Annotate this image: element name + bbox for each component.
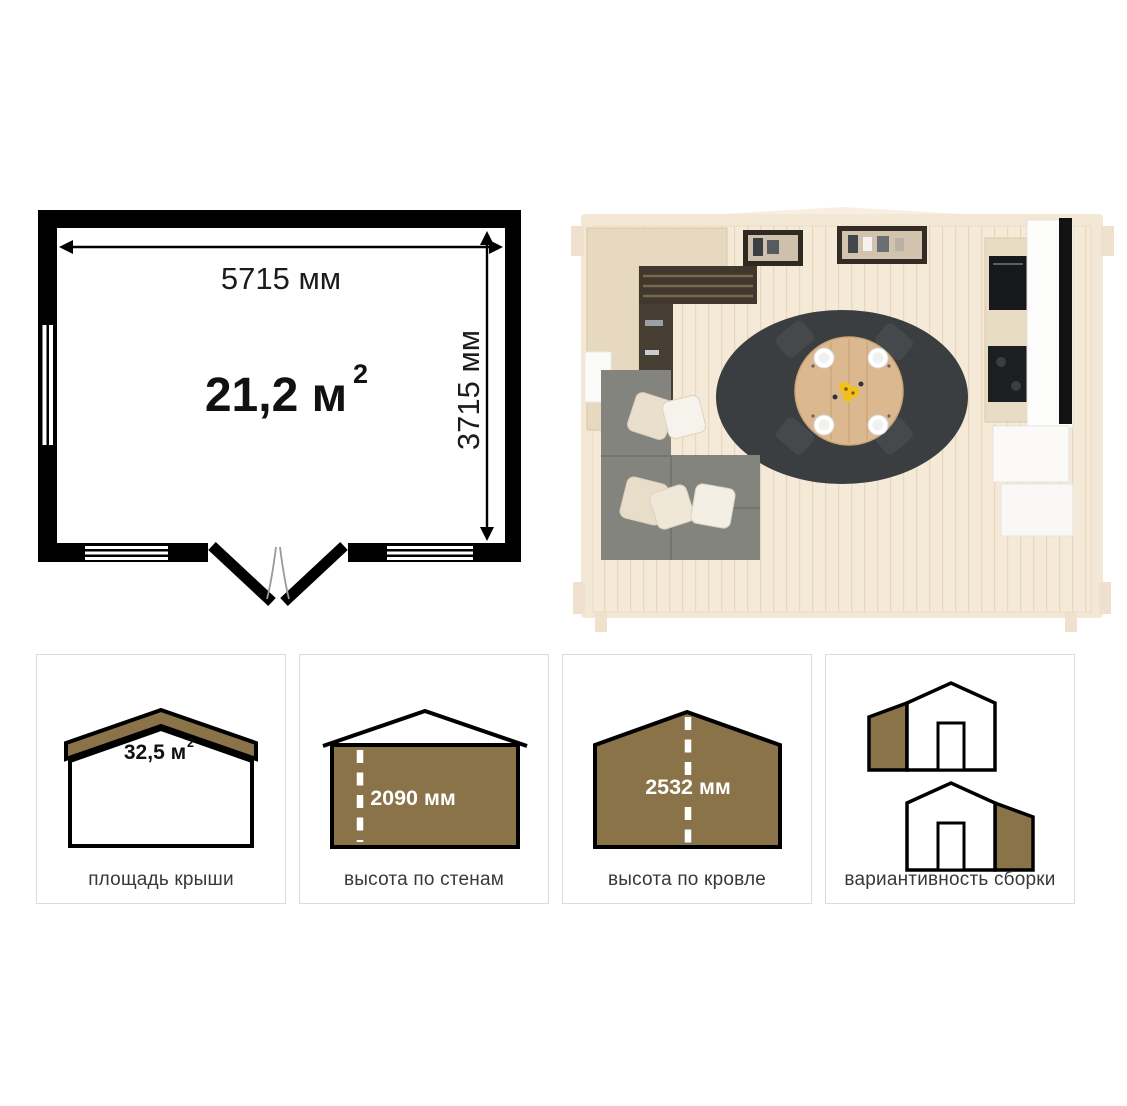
card-wall-height: 2090 мм высота по стенам [299, 654, 549, 904]
product-spec-sheet: 5715 мм 3715 мм 21,2 м 2 [0, 0, 1127, 1106]
card-roof-area: 32,5 м 2 площадь крыши [36, 654, 286, 904]
window-bottom-right [387, 546, 473, 560]
width-dimension-label: 5715 мм [221, 261, 341, 296]
annex-left [869, 703, 907, 770]
wall-shelf-left [743, 230, 803, 266]
assembly-variants-label: вариантивность сборки [826, 869, 1074, 891]
ridge-height-label: высота по кровле [563, 869, 811, 891]
wall-shelf-right [837, 226, 927, 264]
wall-height-value: 2090 мм [370, 786, 456, 810]
window-bottom-left [85, 546, 168, 560]
card-assembly-variants: вариантивность сборки [825, 654, 1075, 904]
roof-area-icon: 32,5 м 2 [37, 655, 287, 905]
wall-height-label: высота по стенам [300, 869, 548, 891]
wall-height-icon: 2090 мм [300, 655, 550, 905]
roof-area-superscript: 2 [187, 736, 194, 750]
roof-area-label: площадь крыши [37, 869, 285, 891]
interior-top-view-render [565, 200, 1120, 635]
roof-area-value: 32,5 м [124, 741, 186, 764]
cooktop [988, 346, 1028, 402]
round-dining-table [795, 337, 903, 445]
floor-plan: 5715 мм 3715 мм 21,2 м 2 [36, 205, 526, 625]
depth-dimension-label: 3715 мм [451, 330, 486, 450]
card-ridge-height: 2532 мм высота по кровле [562, 654, 812, 904]
door-top [938, 723, 964, 770]
annex-right [995, 803, 1033, 870]
ridge-height-icon: 2532 мм [563, 655, 813, 905]
area-superscript: 2 [353, 359, 368, 389]
door-bottom [938, 823, 964, 870]
roof-outline [323, 711, 527, 746]
area-value: 21,2 м [205, 369, 347, 422]
ridge-height-value: 2532 мм [645, 775, 731, 799]
assembly-variants-icon [826, 655, 1076, 905]
